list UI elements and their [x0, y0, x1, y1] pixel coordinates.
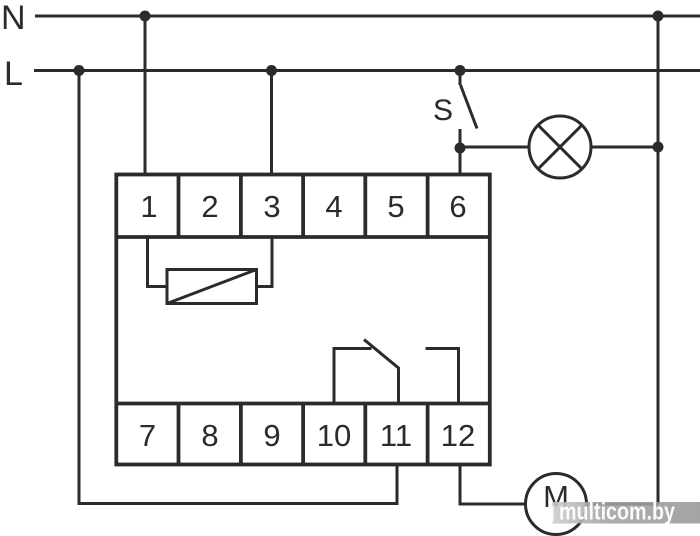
svg-text:6: 6 [449, 189, 466, 224]
svg-text:L: L [4, 55, 23, 93]
svg-text:8: 8 [201, 418, 218, 453]
svg-text:N: N [1, 0, 26, 37]
svg-text:2: 2 [201, 189, 218, 224]
svg-text:11: 11 [380, 418, 412, 453]
svg-text:12: 12 [441, 418, 475, 453]
svg-text:5: 5 [387, 189, 404, 224]
svg-text:multicom.by: multicom.by [559, 499, 676, 526]
svg-text:3: 3 [263, 189, 280, 224]
svg-text:4: 4 [325, 189, 342, 224]
svg-text:9: 9 [263, 418, 280, 453]
svg-text:7: 7 [139, 418, 156, 453]
svg-text:S: S [433, 94, 453, 127]
svg-text:10: 10 [317, 418, 351, 453]
svg-text:1: 1 [140, 189, 157, 224]
